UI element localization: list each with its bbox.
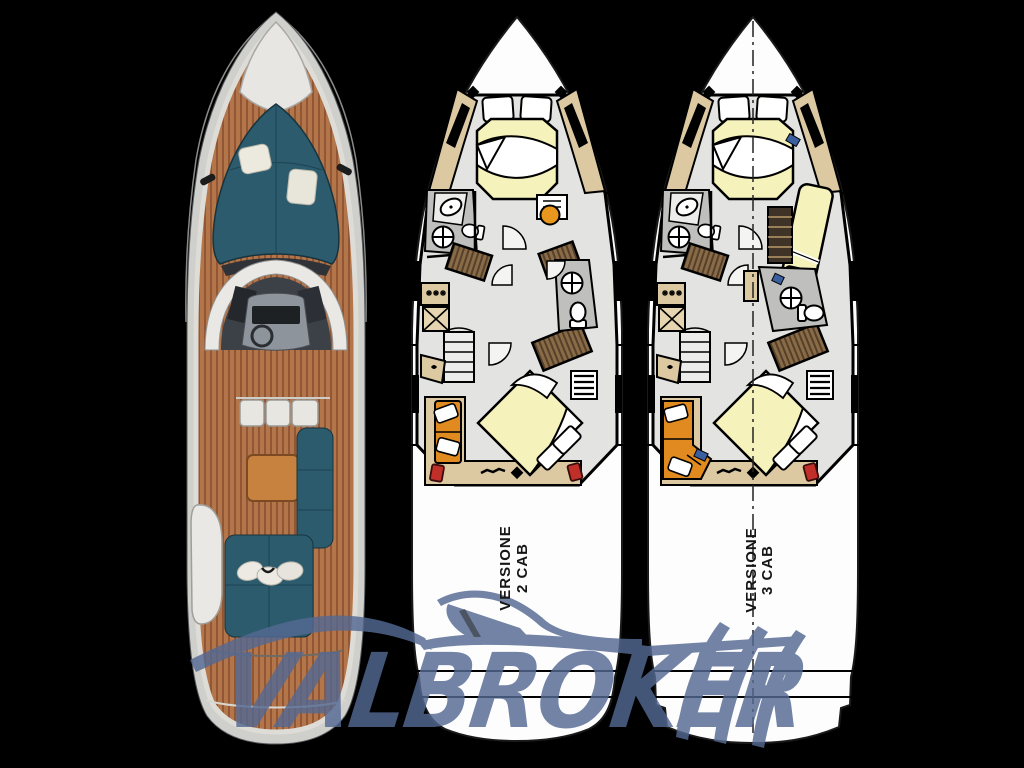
helm-seat-2	[266, 400, 290, 426]
label-3cab-line1: VERSIONE	[743, 527, 760, 613]
toilet-icon	[798, 305, 824, 321]
shower-icon	[562, 273, 583, 294]
head-cabinet	[744, 271, 758, 301]
label-2cab-line2: 2 CAB	[514, 543, 531, 593]
stool	[541, 206, 560, 225]
helm-seat-3	[292, 400, 318, 426]
port-lounger	[191, 505, 222, 624]
yacht-brochure-image: VALBROKER VERSIONE 2 CAB VERSIONE 3 CAB	[0, 0, 1024, 768]
cockpit-sofa-starboard	[297, 428, 333, 548]
yacht-layout-canvas: VALBROKER VERSIONE 2 CAB VERSIONE 3 CAB	[0, 0, 1024, 768]
dashboard-screens	[252, 306, 300, 324]
label-2cab-line1: VERSIONE	[497, 525, 514, 611]
aft-sofa-straight	[433, 401, 461, 463]
bow-pillow-1	[238, 143, 273, 175]
bow-pillow-2	[286, 169, 317, 206]
red-accent-left	[430, 464, 445, 482]
cockpit-table	[247, 455, 299, 501]
toilet-icon	[570, 303, 586, 329]
helm-seat-1	[240, 400, 264, 426]
cabin-ladder-icon	[768, 207, 792, 263]
label-3cab-line2: 3 CAB	[759, 545, 776, 595]
valbroker-wordmark: VALBROKER	[215, 632, 814, 751]
